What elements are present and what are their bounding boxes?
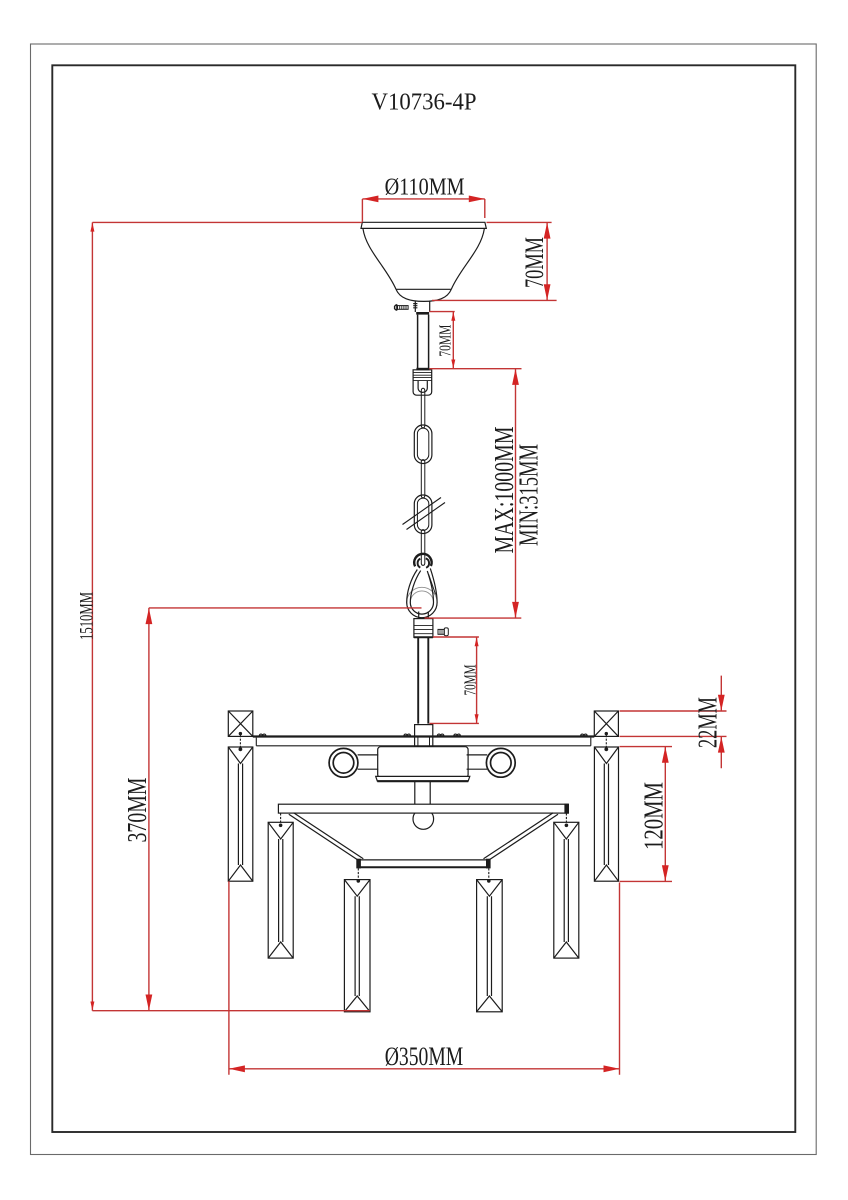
svg-text:120MM: 120MM	[638, 782, 668, 850]
svg-text:V10736-4P: V10736-4P	[372, 90, 477, 116]
svg-text:370MM: 370MM	[122, 778, 152, 843]
svg-text:MIN:315MM: MIN:315MM	[513, 444, 543, 546]
svg-text:1510MM: 1510MM	[77, 592, 98, 640]
svg-text:70MM: 70MM	[436, 325, 455, 357]
svg-text:70MM: 70MM	[460, 665, 479, 696]
svg-text:Ø350MM: Ø350MM	[385, 1042, 464, 1071]
svg-text:22MM: 22MM	[693, 697, 723, 748]
svg-text:Ø110MM: Ø110MM	[385, 175, 465, 201]
svg-text:70MM: 70MM	[520, 237, 549, 288]
